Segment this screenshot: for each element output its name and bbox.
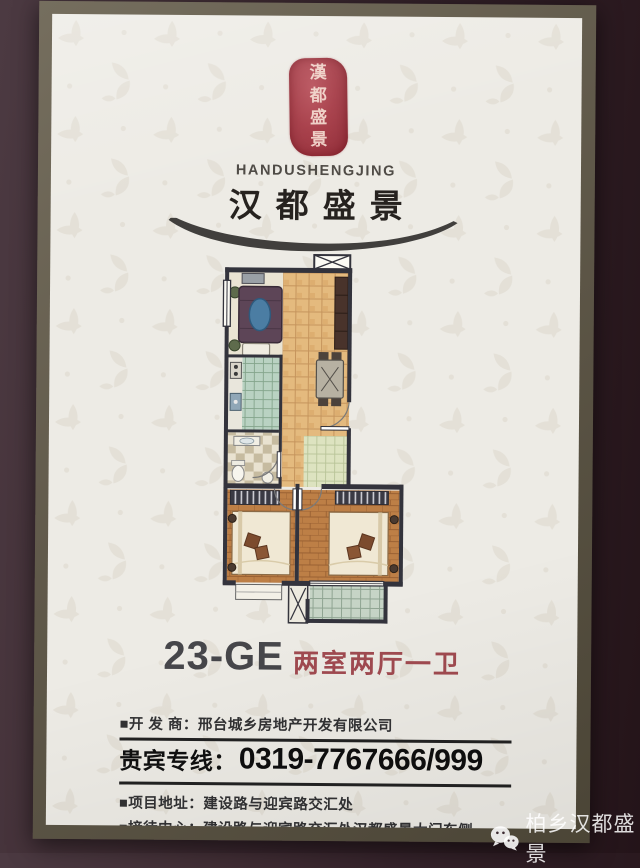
vip-line: 贵宾专线： 0319-7767666/999 — [119, 740, 511, 780]
photo-background: { "photo": { "watermark": { "icon": "wec… — [0, 0, 640, 853]
watermark-text: 柏乡汉都盛景 — [526, 808, 640, 868]
info-block: ■开 发 商：邢台城乡房地产开发有限公司 贵宾专线： 0319-7767666/… — [119, 712, 512, 829]
reception-line: ■接待中心：建设路与迎宾路交汇处汉都盛景大门东侧 — [119, 816, 511, 829]
unit-code: 23-GE — [163, 634, 284, 680]
reception-label: ■接待中心： — [119, 820, 203, 829]
developer-value: 邢台城乡房地产开发有限公司 — [198, 717, 393, 735]
address-line: ■项目地址：建设路与迎宾路交汇处 — [119, 791, 511, 815]
reception-value: 建设路与迎宾路交汇处汉都盛景大门东侧 — [203, 821, 473, 829]
wechat-icon — [490, 823, 520, 853]
divider-rule-bottom — [119, 781, 511, 787]
brand-seal: 漢 都 盛 景 — [289, 58, 348, 157]
seal-char: 盛 — [310, 107, 327, 130]
seal-char: 漢 — [309, 62, 326, 85]
address-value: 建设路与迎宾路交汇处 — [203, 796, 353, 813]
vip-label: 贵宾专线： — [119, 741, 237, 776]
vip-phone: 0319-7767666/999 — [239, 742, 483, 778]
flyer-frame: 漢 都 盛 景 HANDUSHENGJING 汉都盛景 — [33, 1, 597, 843]
seal-char: 都 — [310, 84, 327, 107]
watermark: 柏乡汉都盛景 — [490, 808, 640, 868]
unit-title: 23-GE 两室两厅一卫 — [47, 633, 577, 682]
seal-char: 景 — [310, 129, 327, 152]
flyer-paper: 漢 都 盛 景 HANDUSHENGJING 汉都盛景 — [46, 14, 582, 829]
developer-label: ■开 发 商： — [120, 716, 198, 733]
unit-layout: 两室两厅一卫 — [293, 642, 461, 680]
address-label: ■项目地址： — [119, 795, 203, 812]
developer-line: ■开 发 商：邢台城乡房地产开发有限公司 — [120, 712, 512, 736]
floorplan — [189, 246, 437, 638]
